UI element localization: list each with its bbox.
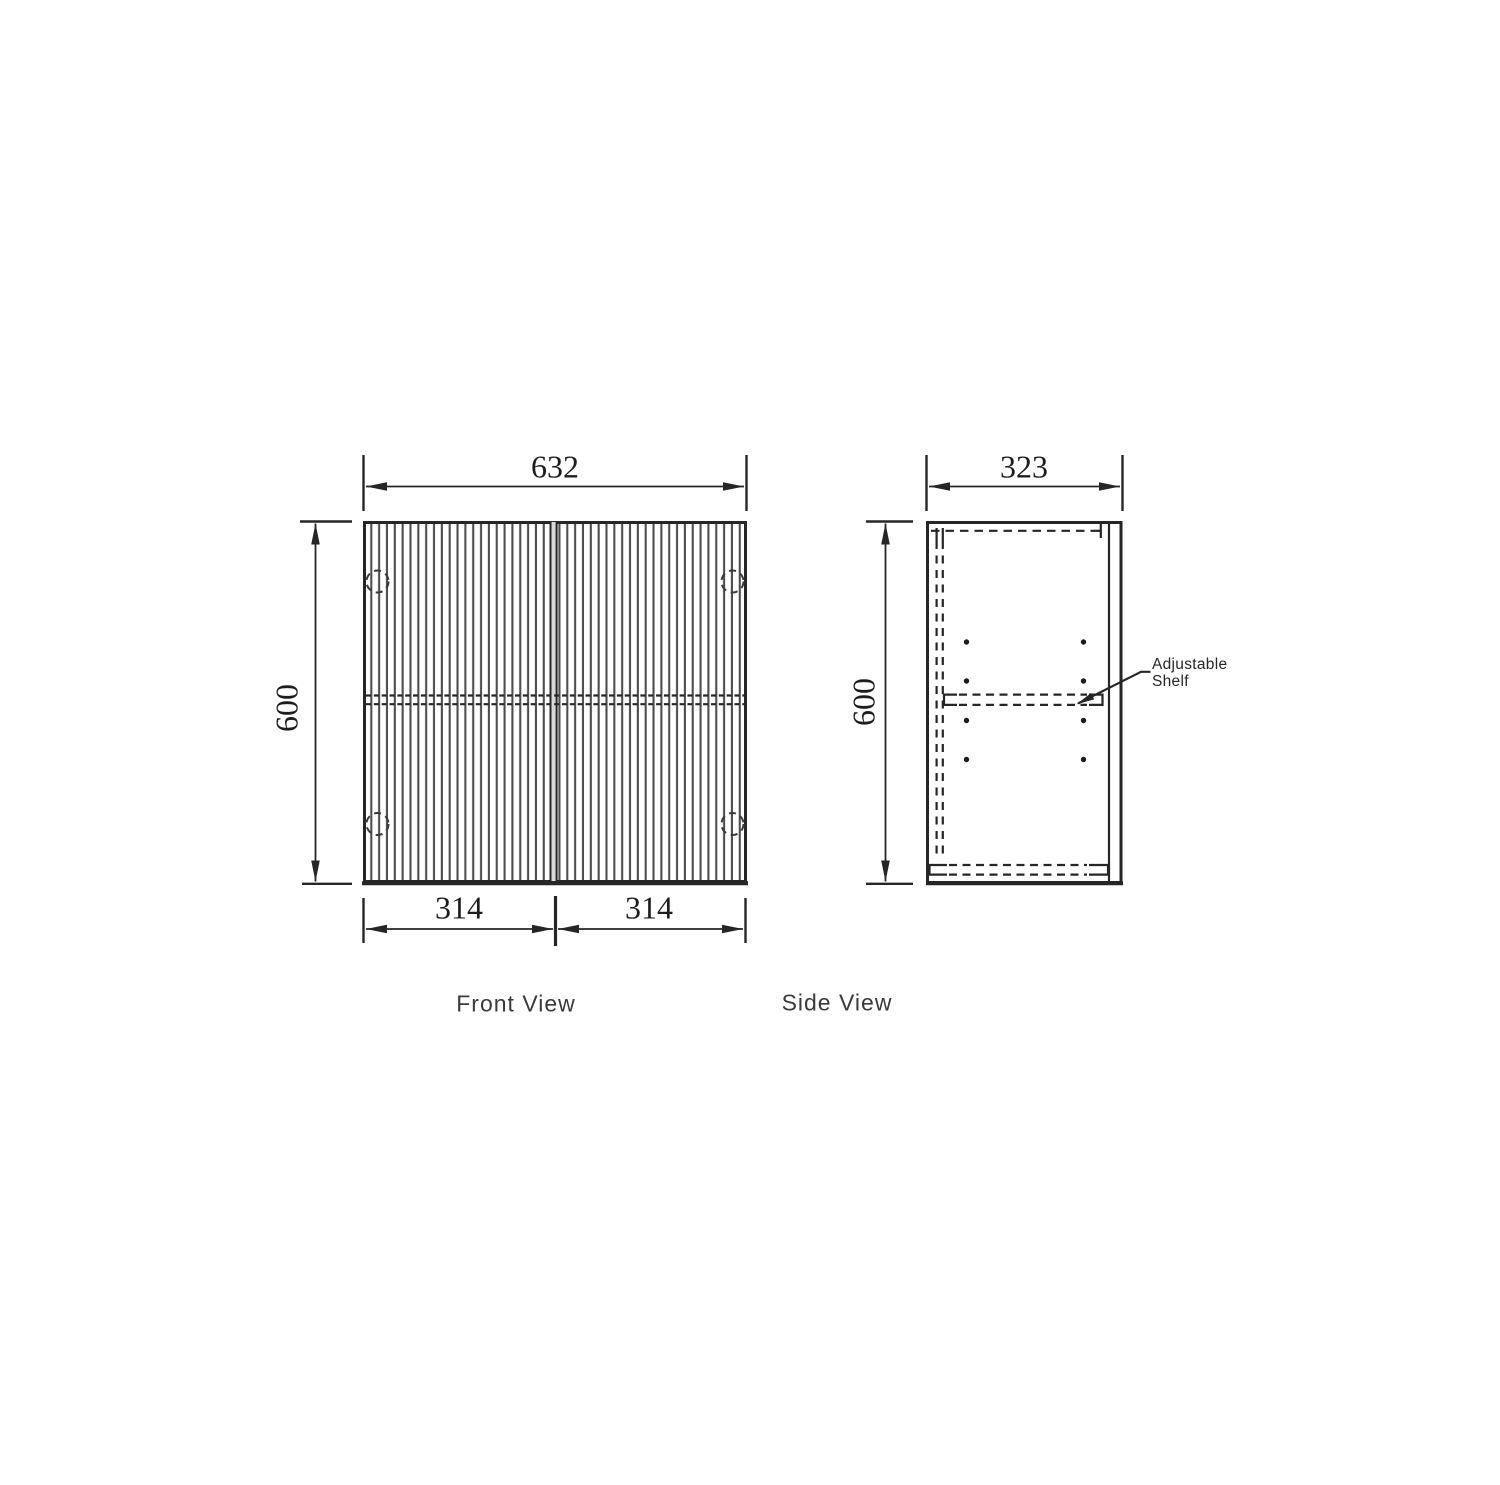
side-depth-dim-label: 323 bbox=[1000, 449, 1048, 486]
door-divider bbox=[551, 522, 557, 881]
front-door-dimensions bbox=[364, 896, 746, 946]
front-left-door-dim-label: 314 bbox=[435, 890, 483, 927]
front-right-door-dim-label: 314 bbox=[625, 890, 673, 927]
front-height-dimension bbox=[300, 522, 352, 884]
adjustable-shelf-label: Adjustable Shelf bbox=[1152, 656, 1240, 690]
drawing-canvas bbox=[0, 0, 1500, 1485]
drawing-sheet: 632 600 314 314 323 600 Adjustable Shelf… bbox=[0, 0, 1500, 1485]
front-view-label: Front View bbox=[456, 991, 576, 1018]
side-cabinet-outline bbox=[928, 523, 1122, 883]
side-view-drawing bbox=[866, 455, 1151, 884]
side-height-dim-label: 600 bbox=[846, 678, 883, 726]
side-view-label: Side View bbox=[782, 990, 893, 1017]
front-height-dim-label: 600 bbox=[269, 684, 306, 732]
front-view-drawing bbox=[300, 455, 748, 946]
front-width-dim-label: 632 bbox=[531, 449, 579, 486]
